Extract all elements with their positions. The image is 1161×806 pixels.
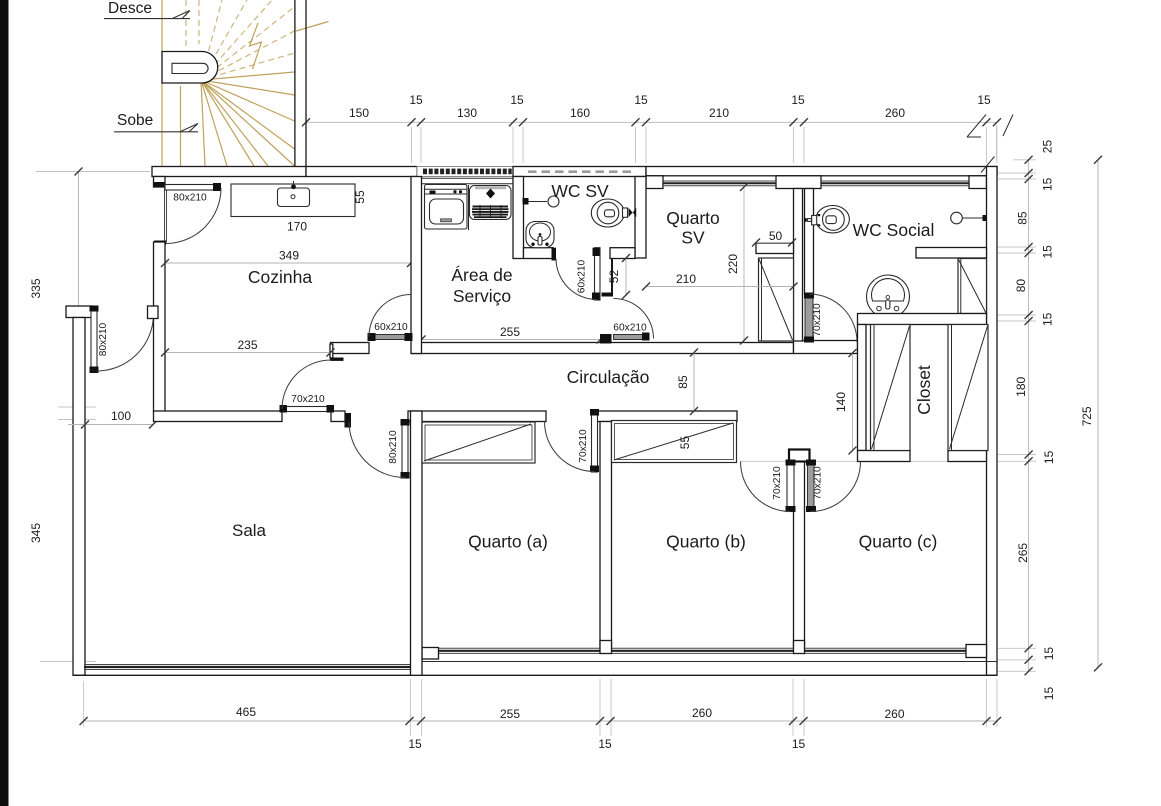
- svg-text:15: 15: [791, 93, 805, 107]
- svg-text:Sobe: Sobe: [117, 112, 153, 129]
- svg-text:85: 85: [676, 375, 690, 389]
- svg-text:60x210: 60x210: [374, 322, 408, 333]
- svg-text:15: 15: [977, 93, 991, 107]
- svg-text:Quarto (a): Quarto (a): [468, 532, 548, 552]
- svg-text:160: 160: [570, 106, 590, 120]
- svg-text:349: 349: [279, 249, 299, 263]
- svg-text:Closet: Closet: [914, 365, 934, 415]
- svg-text:180: 180: [1014, 376, 1028, 396]
- svg-text:55: 55: [353, 190, 367, 204]
- svg-text:260: 260: [885, 106, 905, 120]
- svg-text:725: 725: [1080, 406, 1094, 426]
- svg-text:70x210: 70x210: [772, 466, 783, 500]
- svg-text:52: 52: [607, 270, 621, 284]
- svg-text:Quarto: Quarto: [666, 208, 720, 228]
- svg-text:70x210: 70x210: [578, 429, 589, 463]
- svg-text:WC Social: WC Social: [853, 220, 935, 240]
- svg-text:85: 85: [1015, 211, 1029, 225]
- svg-text:140: 140: [834, 392, 848, 412]
- svg-text:15: 15: [408, 737, 422, 751]
- svg-text:25: 25: [1041, 140, 1055, 154]
- svg-text:170: 170: [287, 220, 307, 234]
- svg-text:50: 50: [769, 229, 783, 243]
- svg-text:335: 335: [29, 278, 43, 298]
- svg-text:15: 15: [1041, 245, 1055, 259]
- svg-text:15: 15: [792, 737, 806, 751]
- svg-text:WC SV: WC SV: [551, 181, 609, 201]
- svg-text:345: 345: [29, 523, 43, 543]
- svg-text:220: 220: [726, 254, 740, 274]
- svg-text:80: 80: [1014, 279, 1028, 293]
- svg-text:15: 15: [1041, 312, 1055, 326]
- svg-text:150: 150: [349, 106, 369, 120]
- svg-text:Área de: Área de: [451, 265, 512, 285]
- svg-text:15: 15: [1041, 177, 1055, 191]
- svg-text:60x210: 60x210: [613, 323, 647, 334]
- svg-text:70x210: 70x210: [813, 466, 824, 500]
- svg-text:Sala: Sala: [232, 521, 267, 540]
- svg-text:Quarto (c): Quarto (c): [859, 532, 938, 552]
- svg-text:130: 130: [457, 106, 477, 120]
- svg-text:Cozinha: Cozinha: [248, 267, 312, 287]
- svg-text:70x210: 70x210: [812, 303, 823, 337]
- svg-text:15: 15: [1042, 450, 1056, 464]
- svg-text:15: 15: [510, 93, 524, 107]
- svg-text:255: 255: [500, 325, 520, 339]
- svg-text:Serviço: Serviço: [453, 286, 511, 306]
- svg-text:SV: SV: [681, 228, 705, 248]
- svg-text:80x210: 80x210: [388, 430, 399, 464]
- svg-text:260: 260: [692, 706, 712, 720]
- svg-text:255: 255: [500, 707, 520, 721]
- svg-text:210: 210: [709, 106, 729, 120]
- svg-text:15: 15: [409, 93, 423, 107]
- svg-text:210: 210: [676, 272, 696, 286]
- svg-text:60x210: 60x210: [577, 259, 588, 293]
- svg-text:70x210: 70x210: [291, 394, 325, 405]
- svg-text:15: 15: [1042, 647, 1056, 661]
- svg-text:265: 265: [1016, 543, 1030, 563]
- svg-text:15: 15: [598, 737, 612, 751]
- svg-text:465: 465: [236, 705, 256, 719]
- svg-text:80x210: 80x210: [173, 193, 207, 204]
- svg-text:Circulação: Circulação: [567, 367, 650, 387]
- svg-text:55: 55: [678, 436, 692, 450]
- svg-text:80x210: 80x210: [98, 322, 109, 356]
- svg-text:260: 260: [884, 707, 904, 721]
- svg-text:Desce: Desce: [108, 0, 152, 17]
- svg-text:15: 15: [1042, 687, 1056, 701]
- svg-text:235: 235: [237, 338, 257, 352]
- svg-text:15: 15: [634, 93, 648, 107]
- svg-text:Quarto (b): Quarto (b): [666, 532, 746, 552]
- svg-text:100: 100: [111, 409, 131, 423]
